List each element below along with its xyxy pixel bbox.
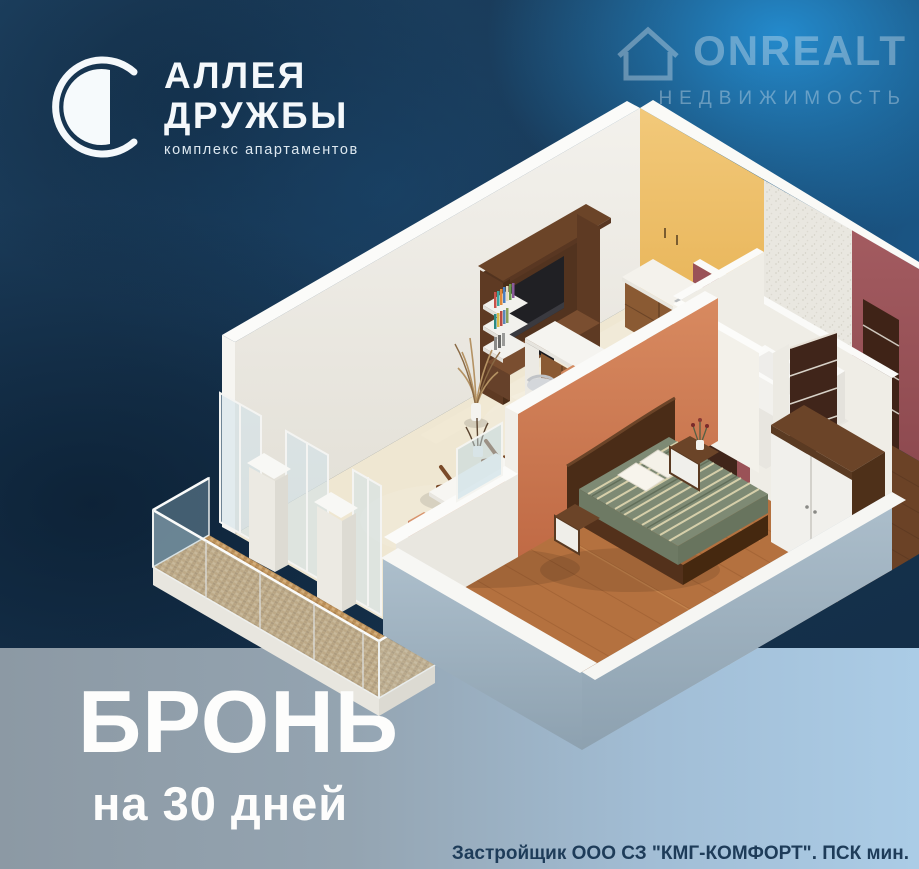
watermark-tagline: НЕДВИЖИМОСТЬ: [609, 88, 907, 110]
logo: АЛЛЕЯ ДРУЖБЫ комплекс апартаментов: [40, 48, 359, 166]
logo-title-line2: ДРУЖБЫ: [164, 96, 359, 136]
window-pier: [247, 453, 291, 572]
offer-subline: на 30 дней: [92, 776, 399, 831]
house-icon: [609, 18, 687, 84]
offer-block: БРОНЬ на 30 дней: [78, 678, 399, 831]
crescent-moon-icon: [40, 48, 150, 166]
balcony-glass-door: [353, 470, 381, 615]
offer-headline: БРОНЬ: [78, 678, 399, 766]
watermark: ONREALT НЕДВИЖИМОСТЬ: [609, 18, 907, 110]
logo-subtitle: комплекс апартаментов: [164, 142, 359, 158]
window-pier: [314, 492, 358, 612]
ad-poster: АЛЛЕЯ ДРУЖБЫ комплекс апартаментов ONREA…: [0, 0, 919, 869]
watermark-brand: ONREALT: [693, 27, 907, 75]
legal-disclaimer: Застройщик ООО СЗ "КМГ-КОМФОРТ". ПСК мин…: [452, 843, 909, 865]
logo-title-line1: АЛЛЕЯ: [164, 56, 359, 96]
